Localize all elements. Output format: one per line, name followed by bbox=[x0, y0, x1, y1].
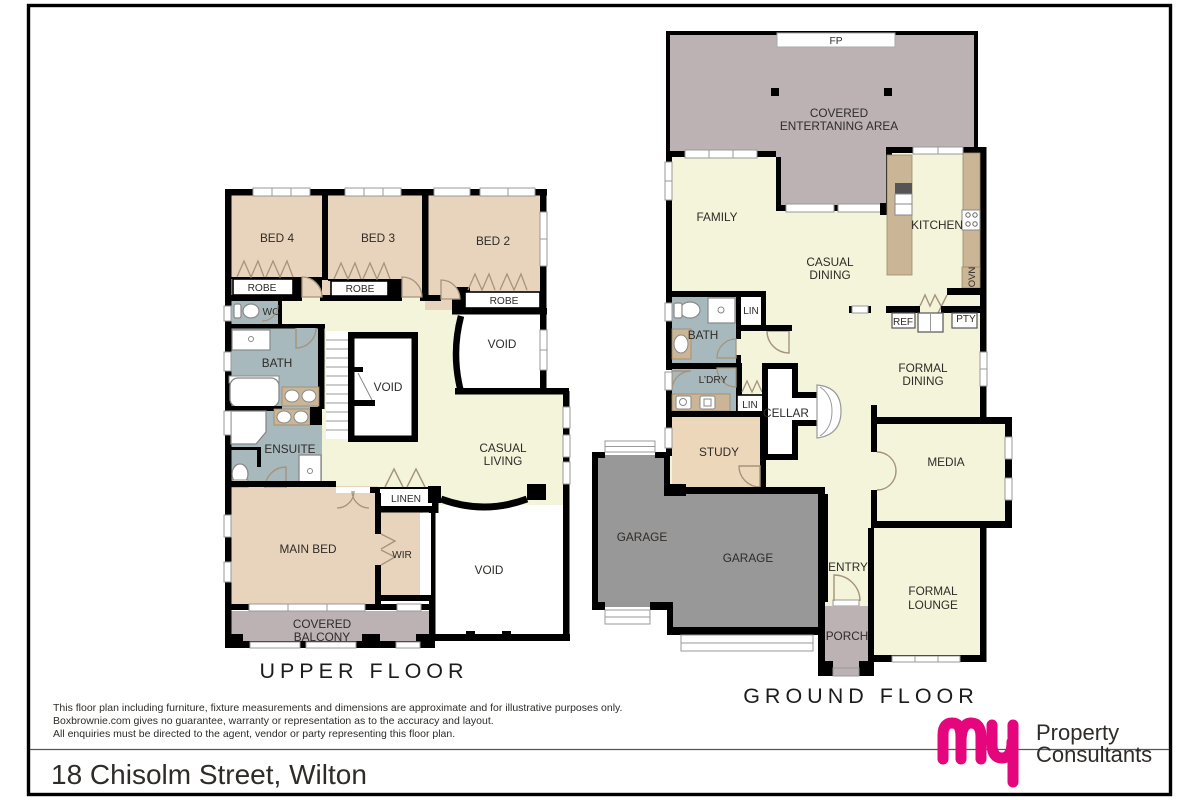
svg-text:BATH: BATH bbox=[262, 356, 293, 370]
svg-text:ROBE: ROBE bbox=[248, 283, 277, 294]
svg-text:MEDIA: MEDIA bbox=[927, 455, 964, 469]
svg-text:REF: REF bbox=[893, 317, 913, 328]
svg-text:VOID: VOID bbox=[475, 563, 504, 577]
svg-text:LOUNGE: LOUNGE bbox=[908, 598, 958, 612]
svg-text:GARAGE: GARAGE bbox=[617, 530, 668, 544]
svg-text:KITCHEN: KITCHEN bbox=[911, 218, 963, 232]
svg-text:Boxbrownie.com gives no guaran: Boxbrownie.com gives no guarantee, warra… bbox=[53, 715, 494, 727]
svg-text:BED 3: BED 3 bbox=[361, 231, 396, 245]
svg-text:OVN: OVN bbox=[967, 267, 978, 288]
svg-text:COVERED: COVERED bbox=[810, 106, 868, 120]
svg-text:BED 4: BED 4 bbox=[260, 231, 295, 245]
svg-text:DINING: DINING bbox=[809, 268, 850, 282]
svg-text:BED 2: BED 2 bbox=[476, 234, 510, 248]
svg-text:COVERED: COVERED bbox=[293, 617, 351, 631]
svg-text:PORCH: PORCH bbox=[826, 629, 869, 643]
svg-text:18 Chisolm Street, Wilton: 18 Chisolm Street, Wilton bbox=[51, 759, 367, 790]
svg-text:GARAGE: GARAGE bbox=[723, 551, 774, 565]
svg-text:ENTERTANING AREA: ENTERTANING AREA bbox=[780, 119, 898, 133]
svg-text:LIVING: LIVING bbox=[484, 454, 523, 468]
svg-text:FAMILY: FAMILY bbox=[696, 210, 737, 224]
svg-text:BALCONY: BALCONY bbox=[294, 630, 351, 644]
svg-text:STUDY: STUDY bbox=[699, 445, 739, 459]
svg-text:GROUND FLOOR: GROUND FLOOR bbox=[743, 684, 979, 708]
svg-text:LIN: LIN bbox=[742, 400, 758, 411]
svg-text:ENTRY: ENTRY bbox=[828, 560, 868, 574]
svg-text:Consultants: Consultants bbox=[1036, 742, 1152, 767]
svg-text:FORMAL: FORMAL bbox=[898, 361, 948, 375]
svg-text:LINEN: LINEN bbox=[391, 494, 421, 505]
svg-text:DINING: DINING bbox=[902, 374, 943, 388]
svg-text:CASUAL: CASUAL bbox=[806, 255, 854, 269]
svg-text:All enquiries must be directed: All enquiries must be directed to the ag… bbox=[53, 728, 455, 740]
svg-text:ROBE: ROBE bbox=[346, 284, 375, 295]
svg-text:CELLAR: CELLAR bbox=[763, 406, 809, 420]
svg-text:LIN: LIN bbox=[743, 306, 759, 317]
svg-text:This floor plan including furn: This floor plan including furniture, fix… bbox=[53, 702, 622, 714]
svg-text:FP: FP bbox=[829, 36, 842, 47]
svg-text:L’DRY: L’DRY bbox=[699, 375, 728, 386]
svg-text:BATH: BATH bbox=[688, 328, 719, 342]
svg-text:PTY: PTY bbox=[956, 314, 976, 325]
svg-text:WIR: WIR bbox=[392, 550, 412, 561]
svg-text:CASUAL: CASUAL bbox=[479, 441, 527, 455]
svg-text:ROBE: ROBE bbox=[490, 296, 519, 307]
svg-text:VOID: VOID bbox=[488, 337, 517, 351]
svg-text:VOID: VOID bbox=[374, 380, 403, 394]
svg-text:WC: WC bbox=[263, 307, 280, 318]
svg-text:UPPER FLOOR: UPPER FLOOR bbox=[259, 659, 468, 683]
svg-text:MAIN BED: MAIN BED bbox=[279, 542, 336, 556]
svg-text:ENSUITE: ENSUITE bbox=[264, 442, 315, 456]
svg-text:FORMAL: FORMAL bbox=[908, 584, 958, 598]
